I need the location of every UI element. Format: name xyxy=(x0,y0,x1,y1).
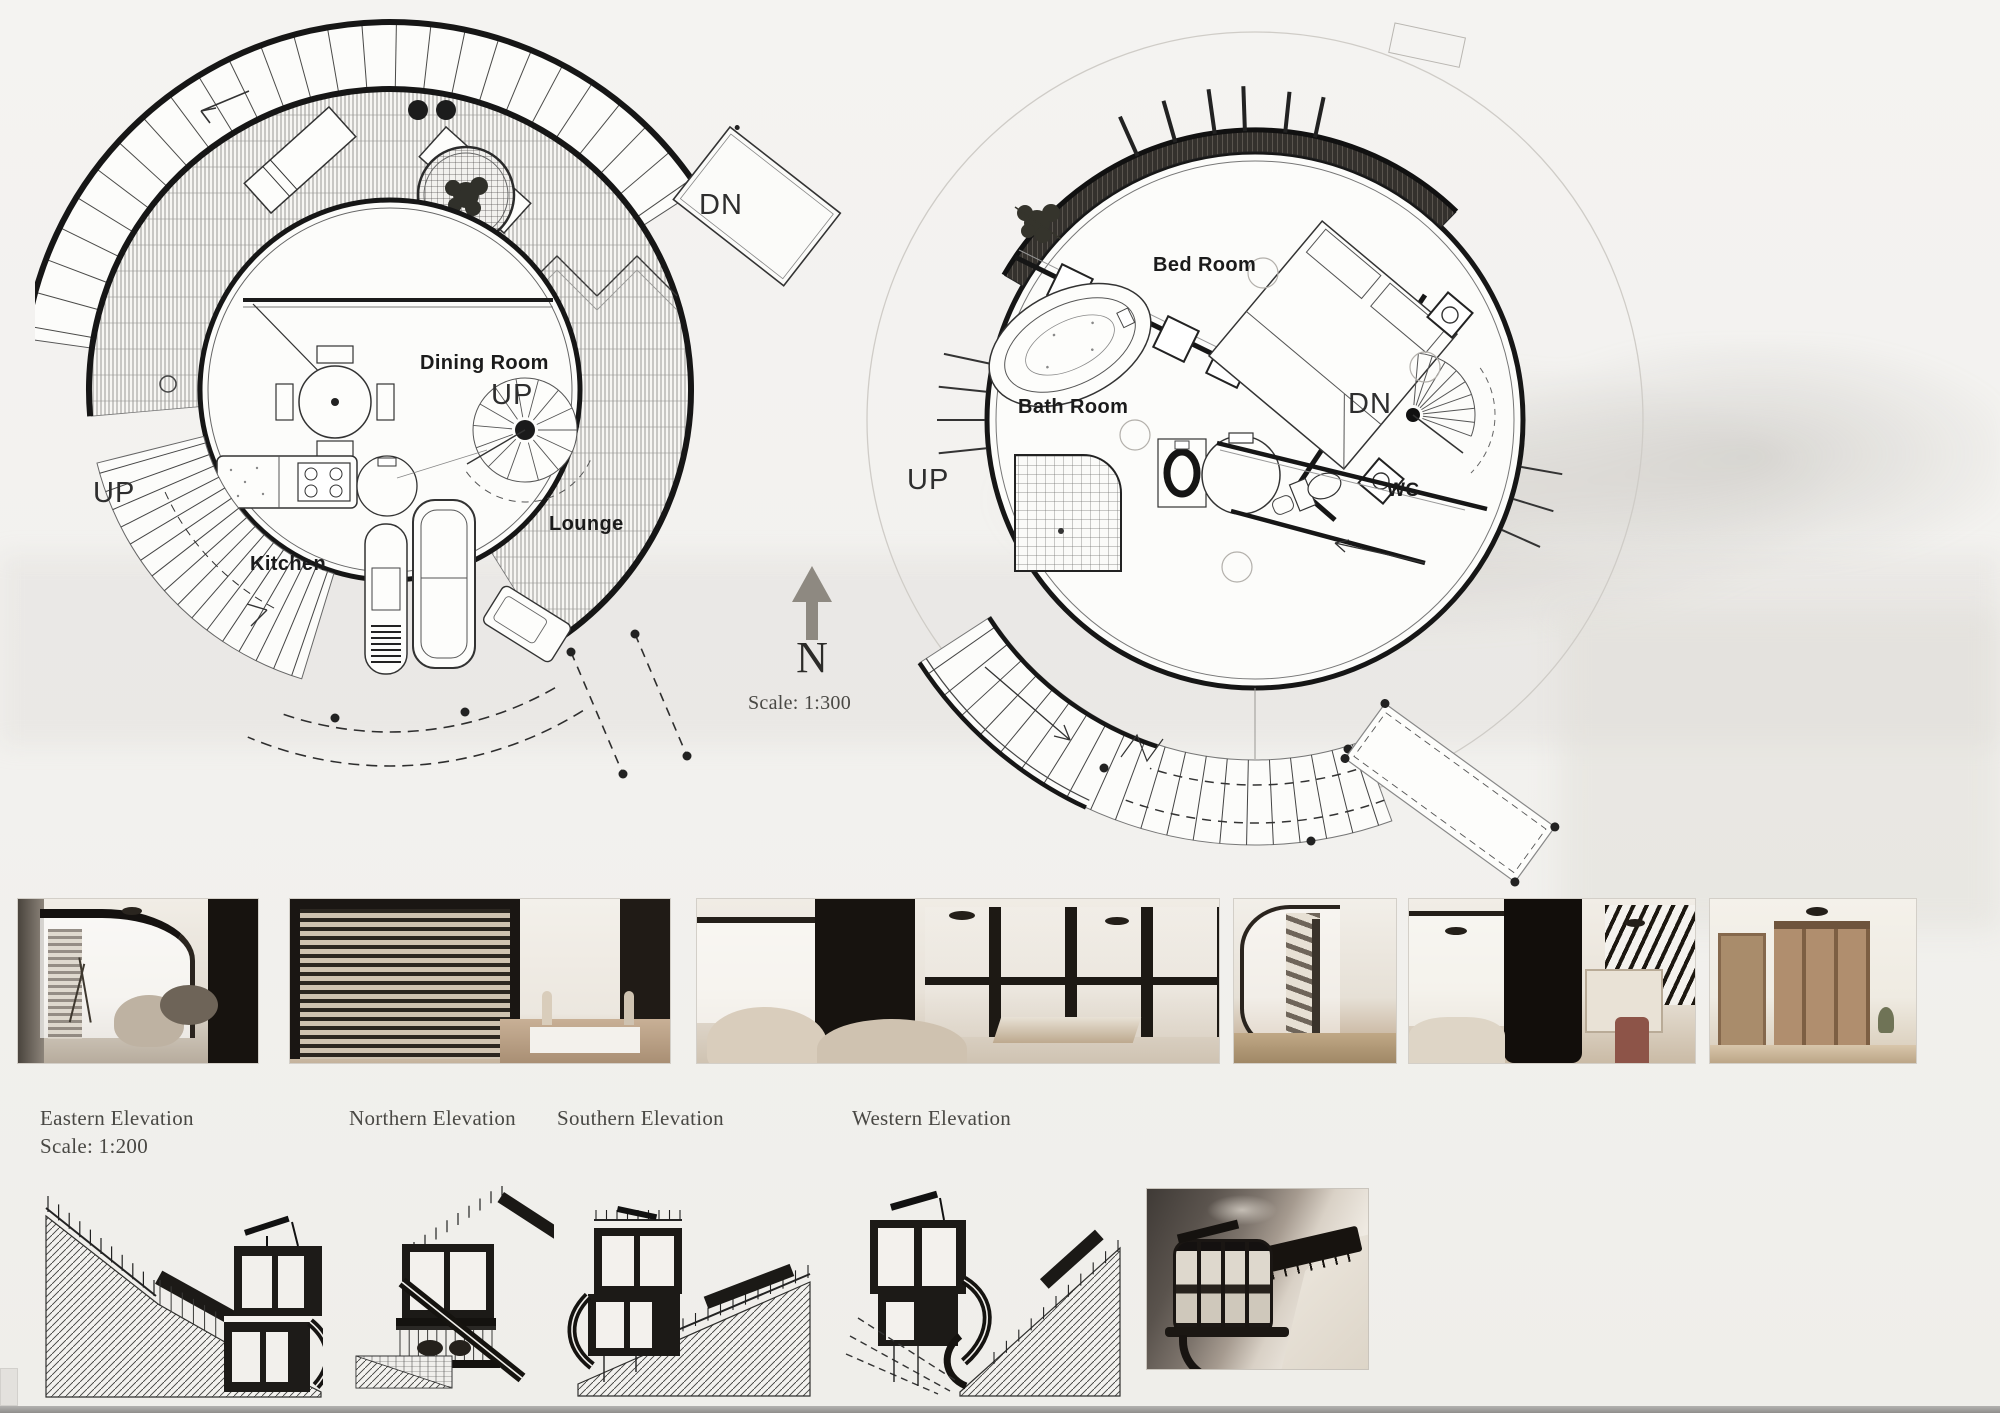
wc-label: WC xyxy=(1387,480,1420,501)
site-dashed-line xyxy=(635,634,687,756)
stair-mast xyxy=(1312,919,1320,1037)
balcony-rail xyxy=(925,977,1219,985)
western-elevation-drawing xyxy=(842,1186,1122,1400)
post-dot xyxy=(1100,764,1109,773)
bath-room-label: Bath Room xyxy=(1018,396,1128,418)
west-posts xyxy=(937,354,991,453)
kitchen-counter xyxy=(217,456,357,508)
wood-door xyxy=(1718,933,1766,1057)
lamp xyxy=(542,991,552,1025)
presentation-board: DN xyxy=(0,0,2000,1413)
elevation-scale-label: Scale: 1:200 xyxy=(40,1134,148,1159)
southern-elevation-drawing xyxy=(558,1186,818,1400)
bed-corner xyxy=(1409,1017,1505,1063)
deck-post xyxy=(408,100,428,120)
dn-label: DN xyxy=(1348,388,1392,420)
tower-mullions xyxy=(1177,1241,1265,1329)
post-dot xyxy=(567,648,576,657)
southern-elevation-label: Southern Elevation xyxy=(557,1106,724,1131)
upper-floor-plan: Bed Room Bath Room WC DN UP xyxy=(865,15,1655,895)
plan-scale-note: Scale: 1:300 xyxy=(748,692,851,715)
shower-drain xyxy=(1058,528,1064,534)
bed-foot xyxy=(530,1027,640,1053)
thumbnail-6 xyxy=(1709,898,1917,1064)
deck-post xyxy=(436,100,456,120)
eastern-elevation-drawing xyxy=(38,1186,323,1400)
roof-posts xyxy=(1209,86,1245,134)
ceiling-light xyxy=(1625,919,1645,927)
bottom-bar xyxy=(0,1406,2000,1413)
dining-room-label: Dining Room xyxy=(420,352,549,374)
ceiling-light xyxy=(122,907,142,915)
wood-floor xyxy=(1234,1033,1396,1063)
wood-floor xyxy=(1710,1045,1916,1063)
ceiling-light xyxy=(949,911,975,920)
thumbnail-3 xyxy=(696,898,1220,1064)
thumbnail-5 xyxy=(1408,898,1696,1064)
western-elevation-label: Western Elevation xyxy=(852,1106,1011,1131)
table-top xyxy=(993,1017,1141,1043)
site-dashed-arc xyxy=(277,688,555,732)
dark-column xyxy=(1504,899,1582,1063)
post-dot xyxy=(631,630,640,639)
page-edge-tab xyxy=(0,1368,18,1406)
sink-unit xyxy=(1158,439,1206,507)
chair-red xyxy=(1615,1017,1649,1063)
north-arrow-icon xyxy=(792,566,832,602)
bed-room-label: Bed Room xyxy=(1153,254,1256,276)
spiral-up-label: UP xyxy=(491,379,533,411)
north-letter: N xyxy=(790,632,834,683)
sofa xyxy=(413,500,475,668)
ground-floor-plan: DN xyxy=(35,12,855,842)
thumbnail-4 xyxy=(1233,898,1397,1064)
ceiling-light xyxy=(1105,917,1129,925)
louver-blinds-wall xyxy=(290,899,520,1059)
northern-elevation-label: Northern Elevation xyxy=(349,1106,516,1131)
kitchen-island xyxy=(365,524,407,674)
outer-up-label: UP xyxy=(93,477,135,509)
post-dot xyxy=(683,752,692,761)
site-dashed-arc xyxy=(248,711,583,766)
kitchen-label: Kitchen xyxy=(250,553,326,575)
thumbnail-2 xyxy=(289,898,671,1064)
lamp xyxy=(624,991,634,1025)
dark-wall xyxy=(208,899,258,1063)
basin xyxy=(160,985,218,1025)
eastern-elevation-label: Eastern Elevation xyxy=(40,1106,194,1131)
up-label: UP xyxy=(907,464,949,496)
plant xyxy=(1878,1007,1894,1033)
post-dot xyxy=(331,714,340,723)
dwelling-wall xyxy=(987,152,1523,688)
shelf-texture xyxy=(48,929,82,1039)
thumbnail-1 xyxy=(17,898,259,1064)
post-dot xyxy=(1307,837,1316,846)
lounge-label: Lounge xyxy=(549,513,624,535)
post-dot xyxy=(619,770,628,779)
ceiling-light xyxy=(1806,907,1828,916)
cloud xyxy=(1207,1195,1277,1225)
dn-label: DN xyxy=(699,189,743,221)
spiral-stair xyxy=(1179,1335,1251,1370)
post-dot xyxy=(461,708,470,717)
northern-elevation-drawing xyxy=(344,1186,554,1400)
shower-area xyxy=(1015,455,1121,571)
ceiling-light xyxy=(1445,927,1467,935)
exterior-3d-render xyxy=(1146,1188,1369,1370)
wardrobe xyxy=(1774,921,1870,1059)
